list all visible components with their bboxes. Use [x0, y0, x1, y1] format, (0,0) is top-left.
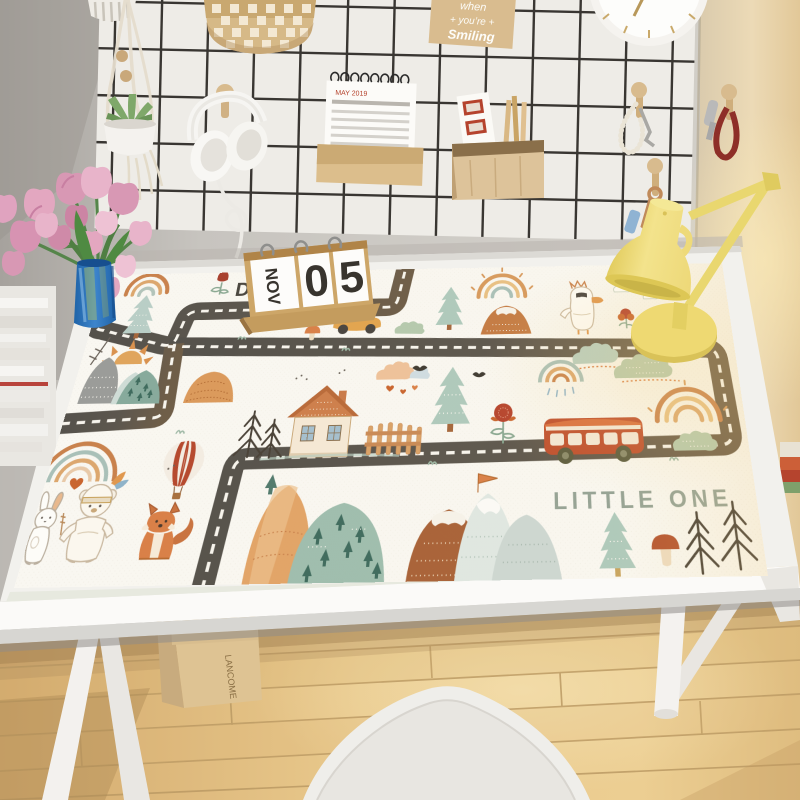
svg-text:0: 0	[302, 256, 331, 307]
svg-text:5: 5	[337, 252, 366, 303]
svg-text:NOV: NOV	[261, 267, 284, 306]
